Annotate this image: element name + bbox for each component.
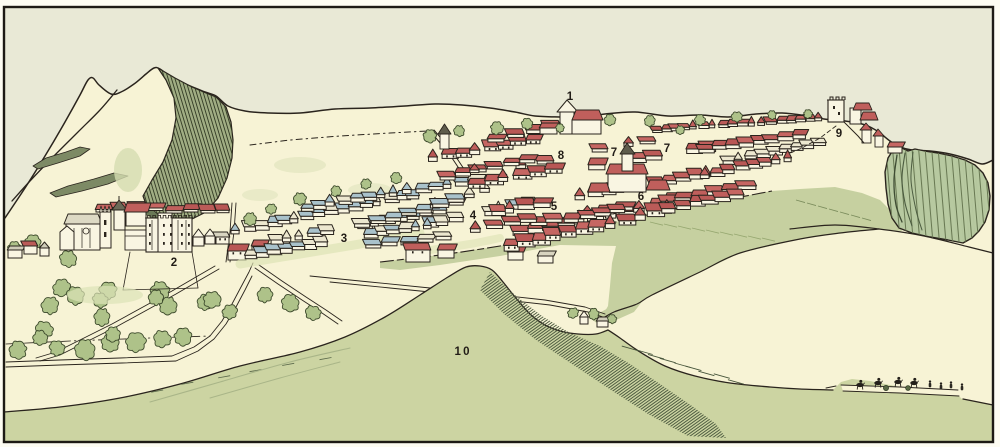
svg-text:5: 5 <box>551 201 558 213</box>
svg-text:8: 8 <box>558 150 565 162</box>
svg-text:1 0: 1 0 <box>454 346 469 358</box>
svg-text:3: 3 <box>341 233 347 245</box>
svg-text:9: 9 <box>836 128 842 140</box>
svg-text:2: 2 <box>171 257 177 269</box>
svg-text:7: 7 <box>611 147 617 159</box>
svg-text:4: 4 <box>470 210 477 222</box>
svg-text:7: 7 <box>664 143 670 155</box>
svg-text:1: 1 <box>567 91 574 103</box>
svg-text:6: 6 <box>638 191 644 203</box>
